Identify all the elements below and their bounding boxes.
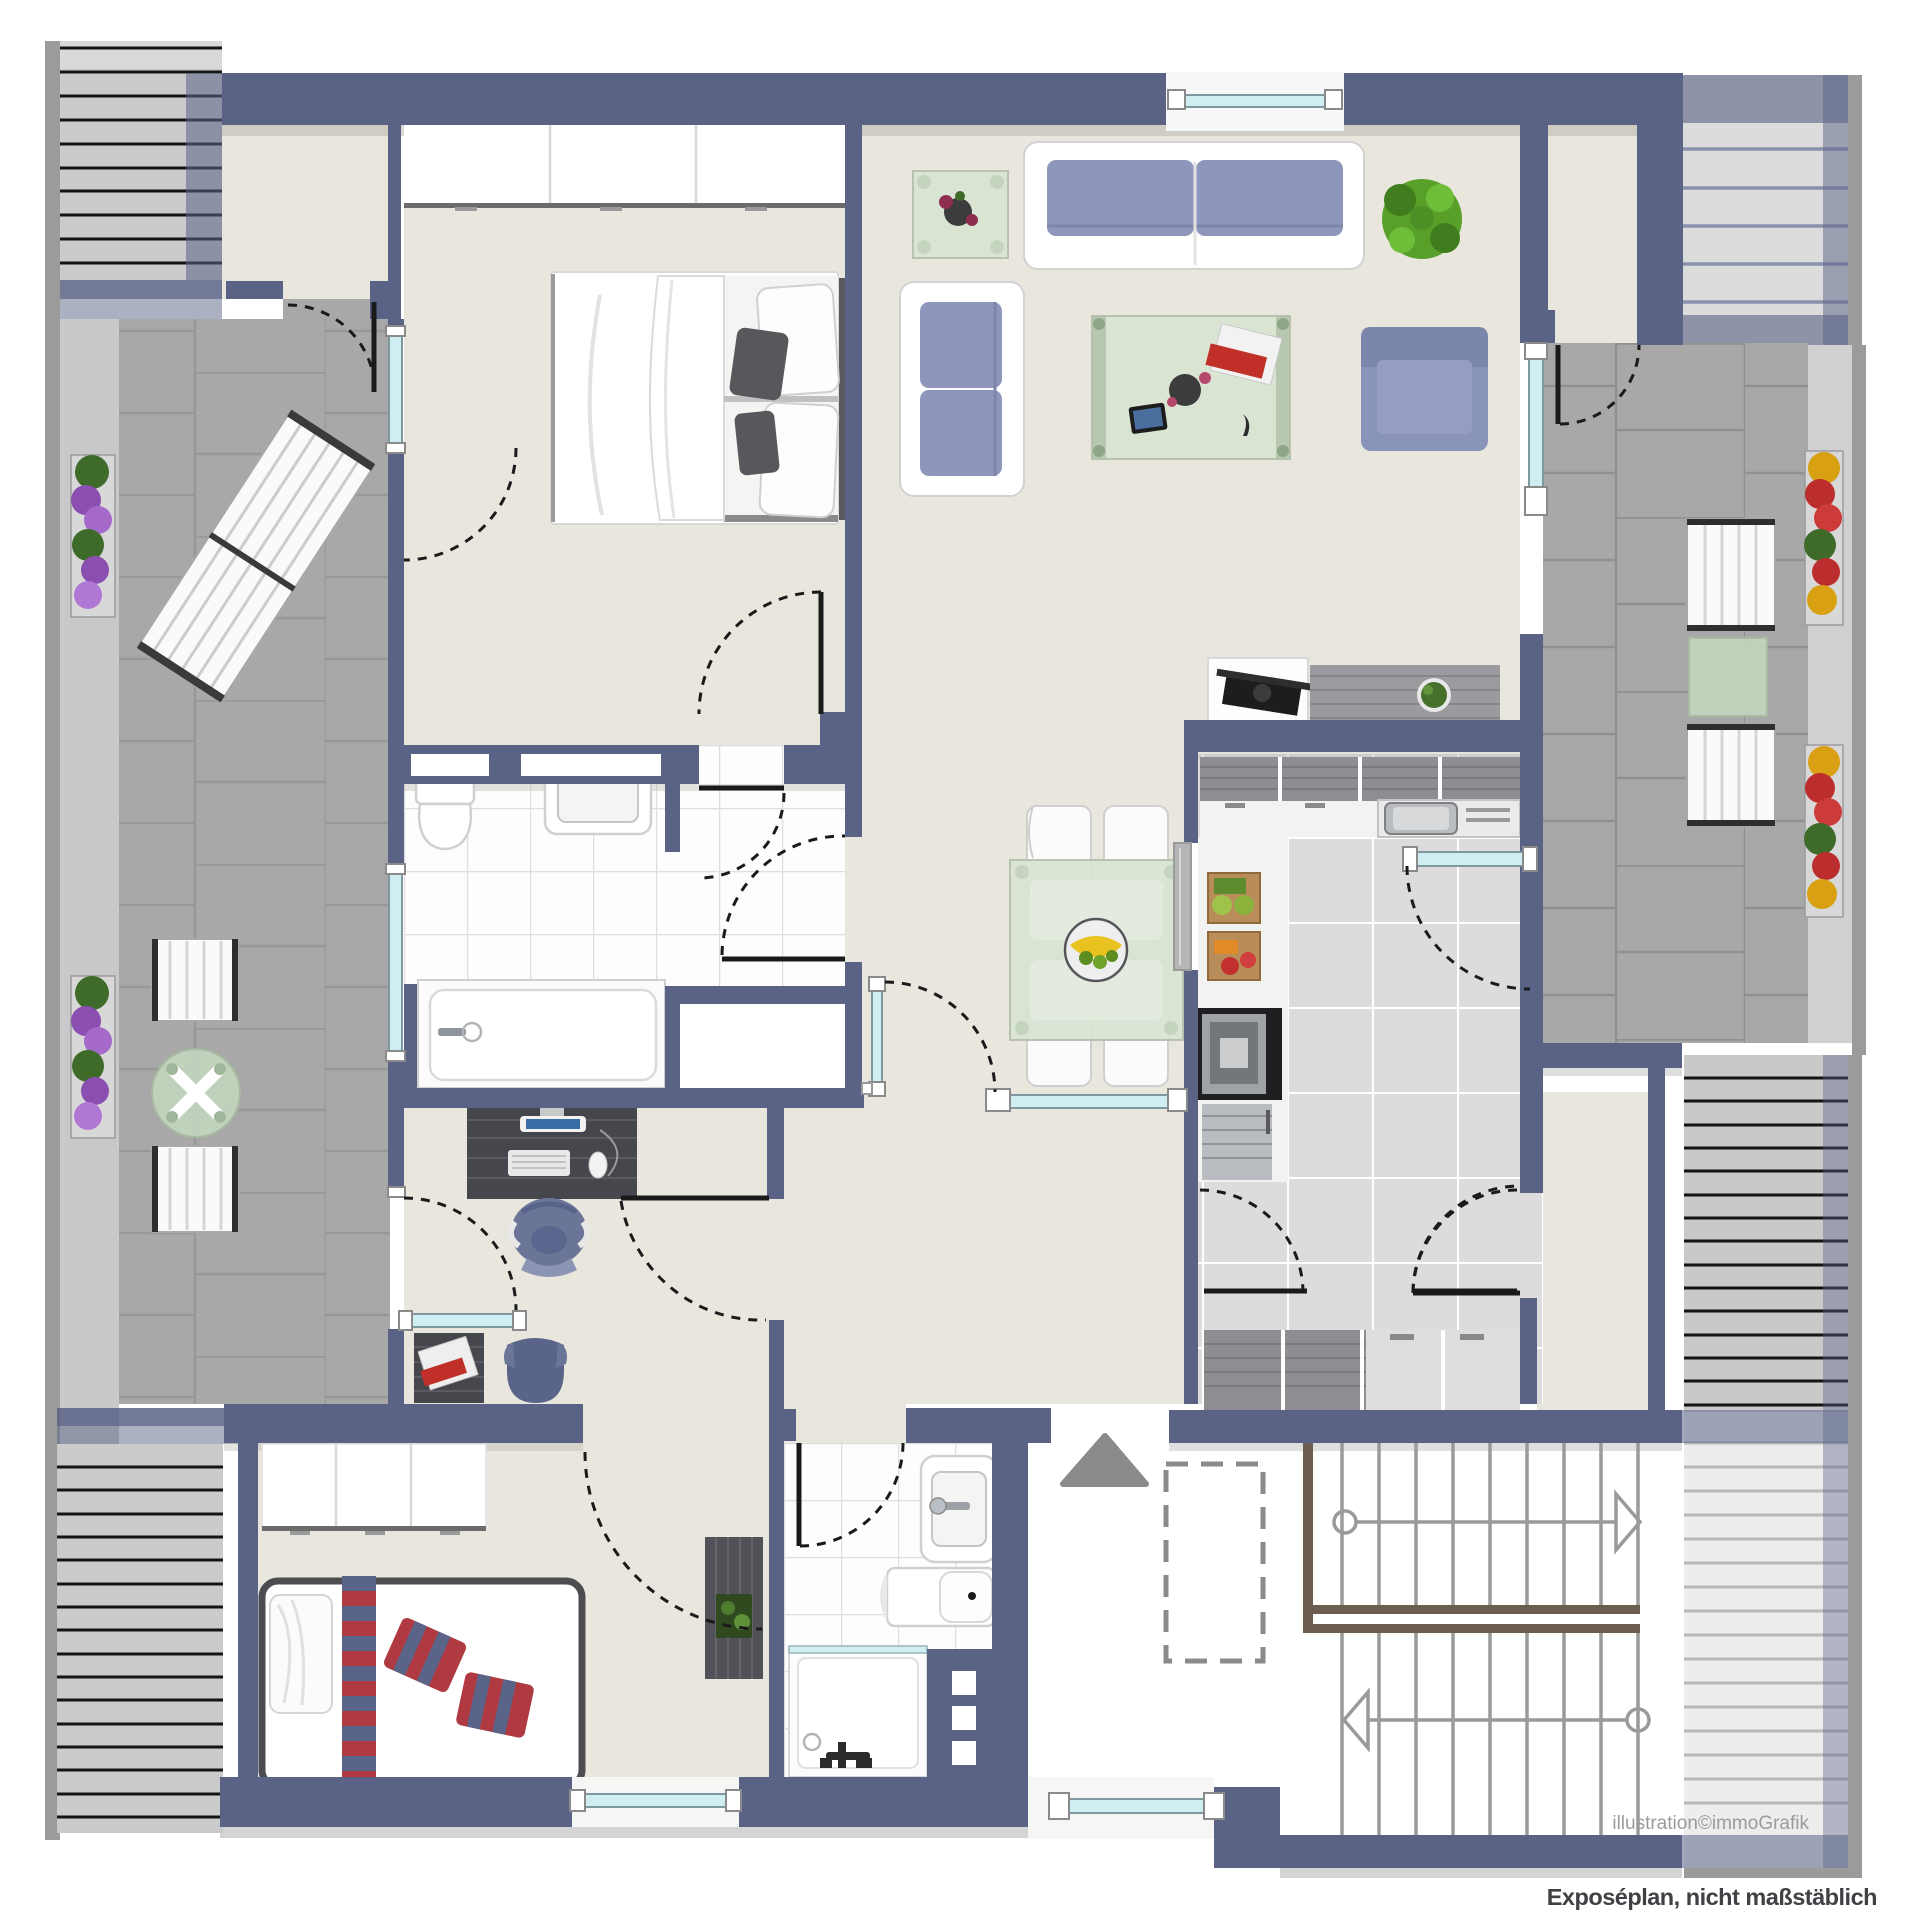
svg-text:Exposéplan, nicht maßstäblich: Exposéplan, nicht maßstäblich	[1547, 1884, 1877, 1910]
svg-text:illustration©immoGrafik: illustration©immoGrafik	[1612, 1813, 1809, 1834]
